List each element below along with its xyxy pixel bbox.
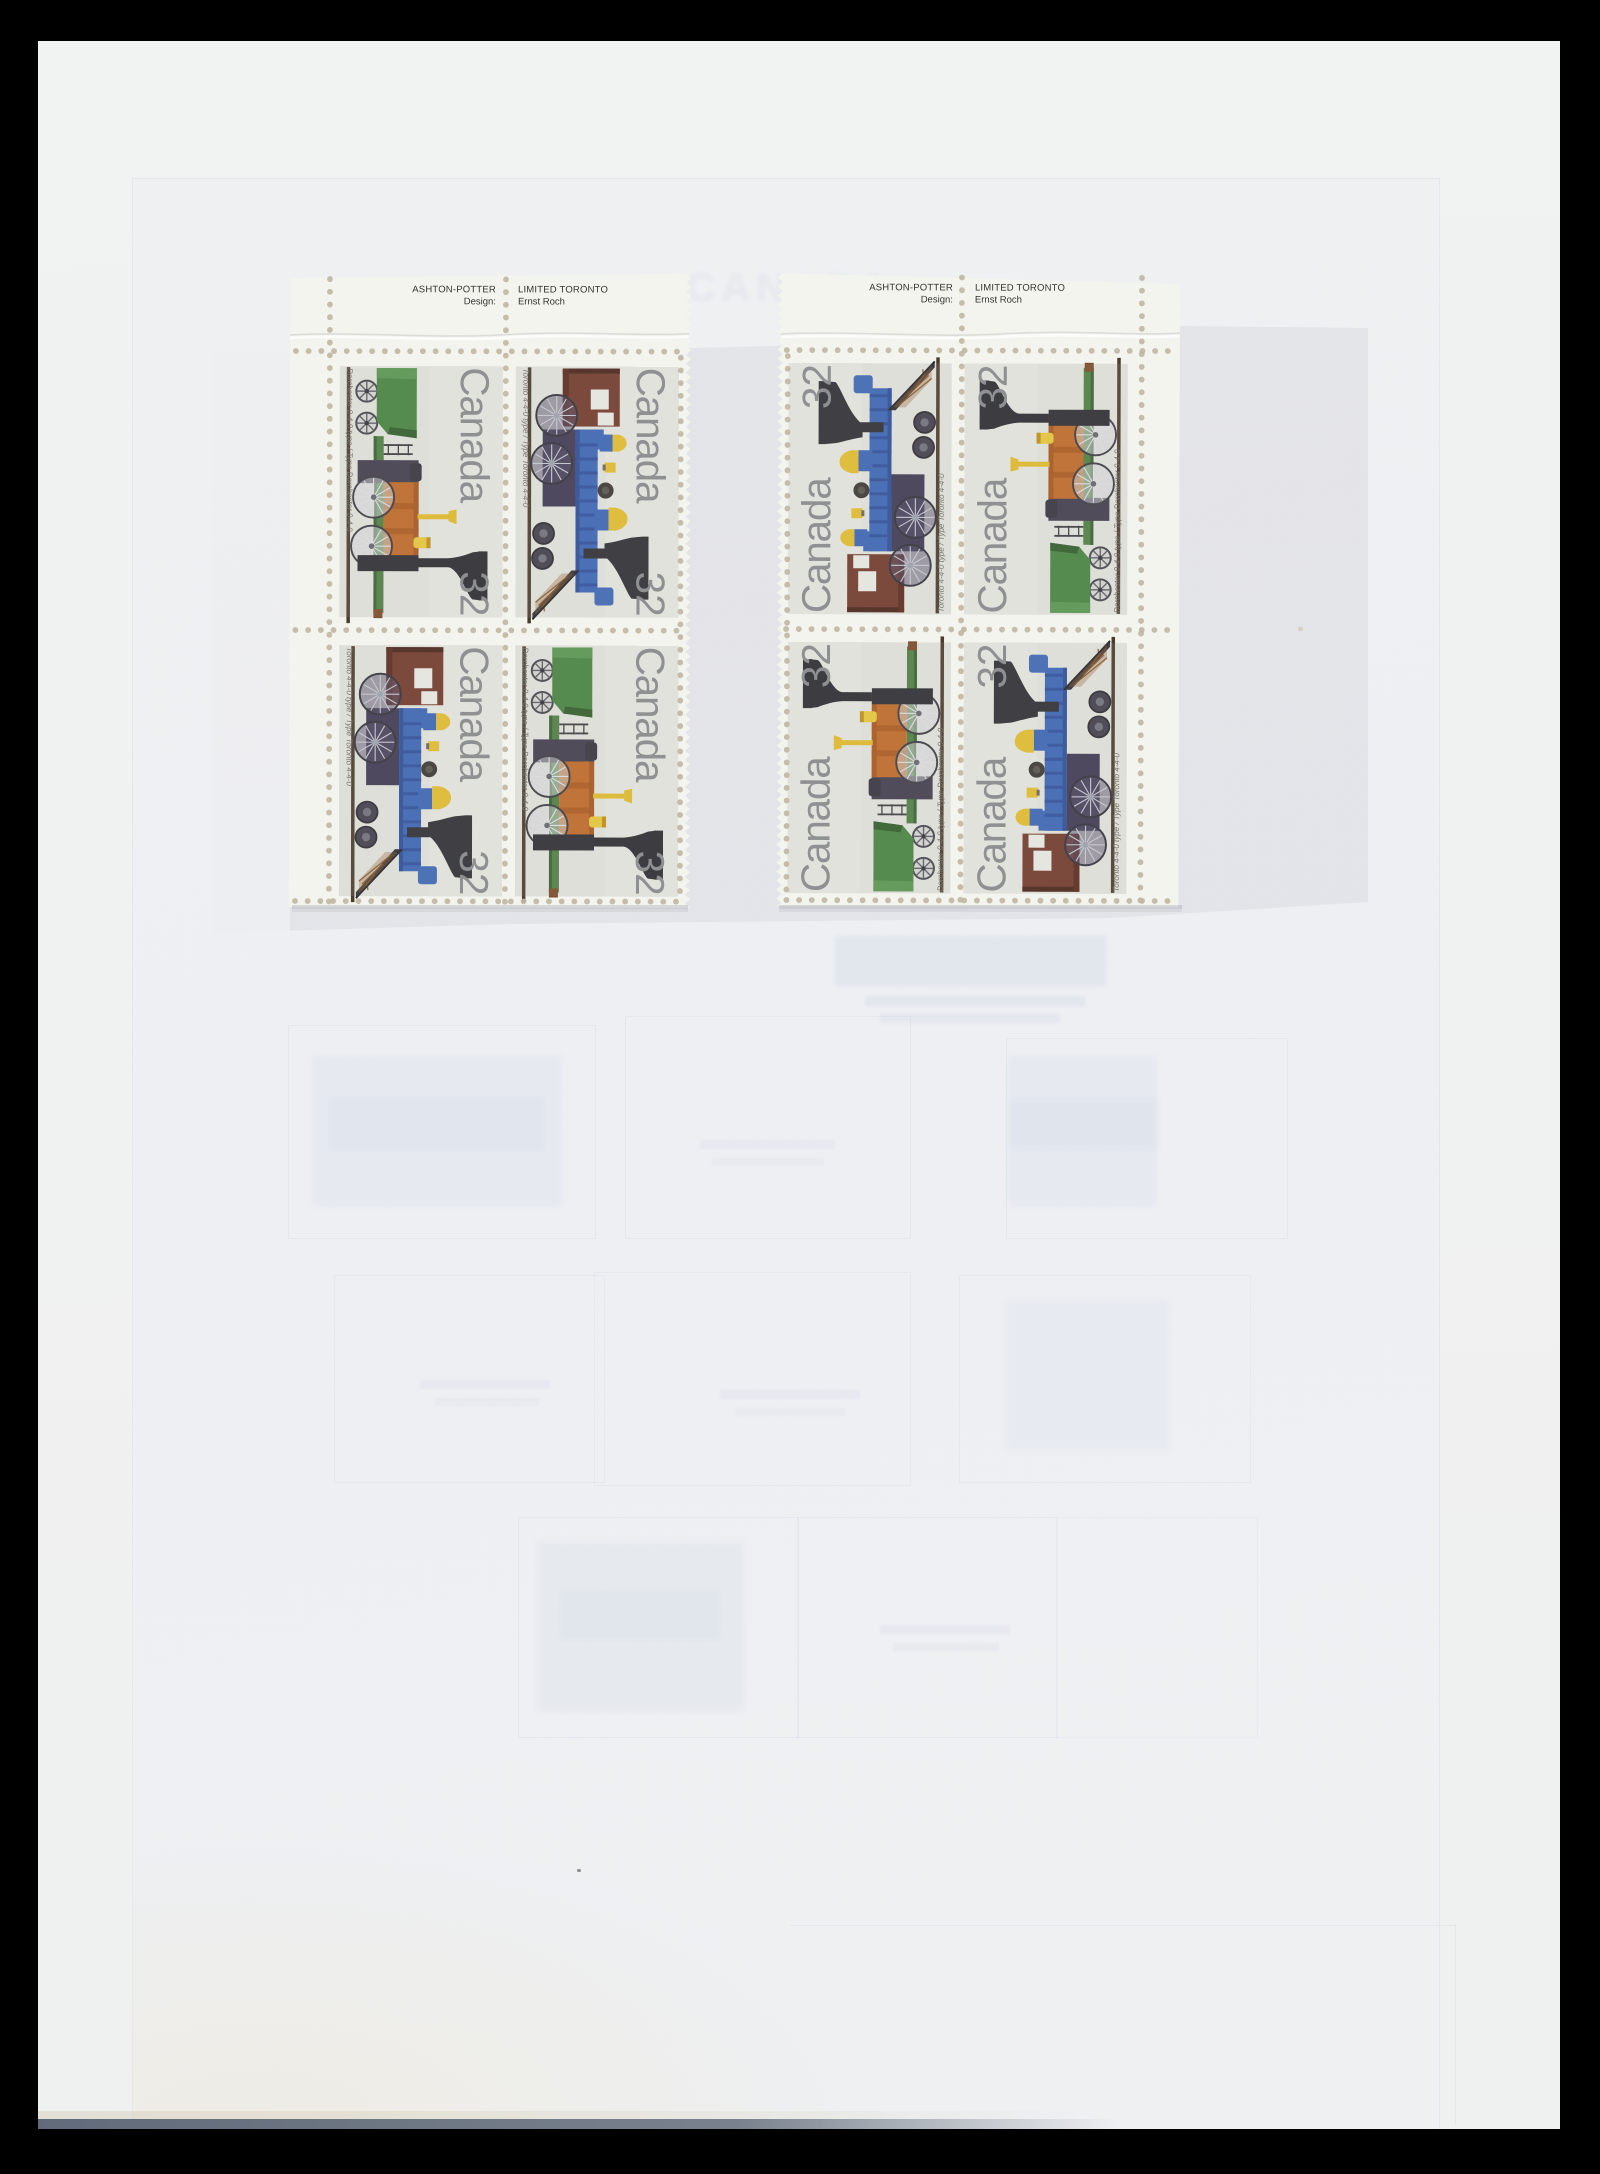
svg-text:ASHTON-POTTER: ASHTON-POTTER — [869, 282, 953, 293]
svg-text:Design:: Design: — [464, 296, 496, 307]
svg-text:Ernst Roch: Ernst Roch — [975, 295, 1022, 306]
svg-text:ASHTON-POTTER: ASHTON-POTTER — [412, 284, 496, 295]
svg-text:Design:: Design: — [921, 294, 953, 305]
svg-text:Ernst Roch: Ernst Roch — [518, 296, 565, 307]
svg-text:LIMITED TORONTO: LIMITED TORONTO — [975, 283, 1065, 294]
svg-text:LIMITED TORONTO: LIMITED TORONTO — [518, 284, 608, 295]
